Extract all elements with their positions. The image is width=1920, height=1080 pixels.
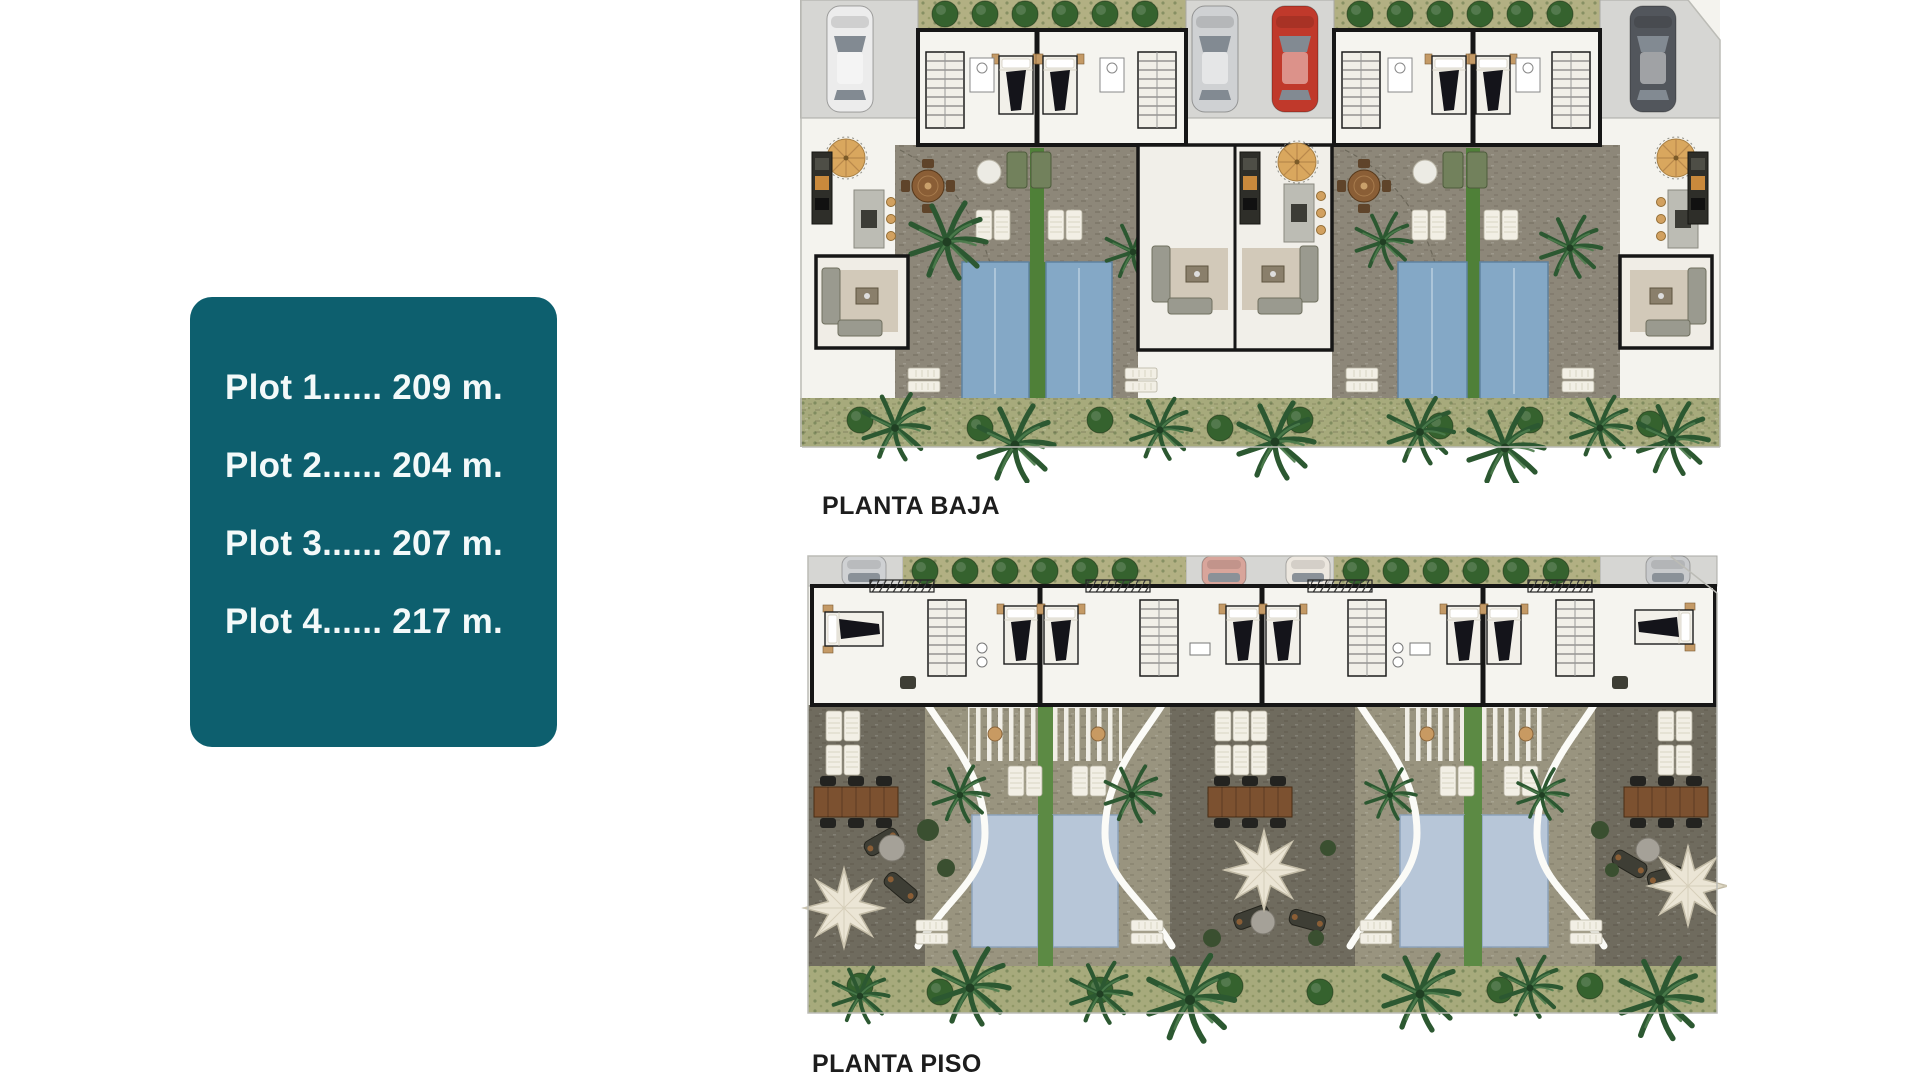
bed-icon [823,605,883,653]
kitchen-island-icon [854,190,896,248]
car-icon-red [1272,6,1318,112]
planta-baja-plan [800,0,1722,483]
landscape-strip [800,394,1720,483]
plot-size-list: Plot 1...... 209 m. Plot 2...... 204 m. … [225,349,557,661]
car-icon-silver [1192,6,1238,112]
window-hatch [870,580,934,592]
plot-info-panel: Plot 1...... 209 m. Plot 2...... 204 m. … [190,297,557,747]
stairs-icon [926,52,964,128]
car-icon-silver [1646,556,1690,586]
pool [1400,815,1464,947]
car-icon-white [827,6,873,112]
planta-piso-plan [800,548,1727,1053]
plot-size-item: Plot 4...... 217 m. [225,583,557,661]
bed-icon [992,54,1040,114]
plot-size-item: Plot 1...... 209 m. [225,349,557,427]
umbrella-icon [1648,846,1727,926]
interior-rooms [812,580,1715,705]
bbq-icon [812,152,832,224]
umbrella-icon [1224,830,1304,910]
car-icon-dark [1630,6,1676,112]
bbq-icon [1240,152,1260,224]
stairs-icon [928,600,966,676]
plot-size-item: Plot 2...... 204 m. [225,427,557,505]
dining-table-icon [1208,776,1292,828]
dining-table-icon [814,776,898,828]
car-icon-tan [1202,556,1246,586]
umbrella-icon [804,868,884,948]
planta-baja-label: PLANTA BAJA [822,492,1000,521]
lounger-icon [976,210,992,240]
plot-size-item: Plot 3...... 207 m. [225,505,557,583]
central-lounge [1138,141,1332,350]
planta-piso-label: PLANTA PISO [812,1050,982,1079]
dining-table-icon [1624,776,1708,828]
floorplan-sheet: Plot 1...... 209 m. Plot 2...... 204 m. … [0,0,1920,1080]
armchair-icon [900,676,916,689]
kitchen-island-icon [1284,184,1326,242]
